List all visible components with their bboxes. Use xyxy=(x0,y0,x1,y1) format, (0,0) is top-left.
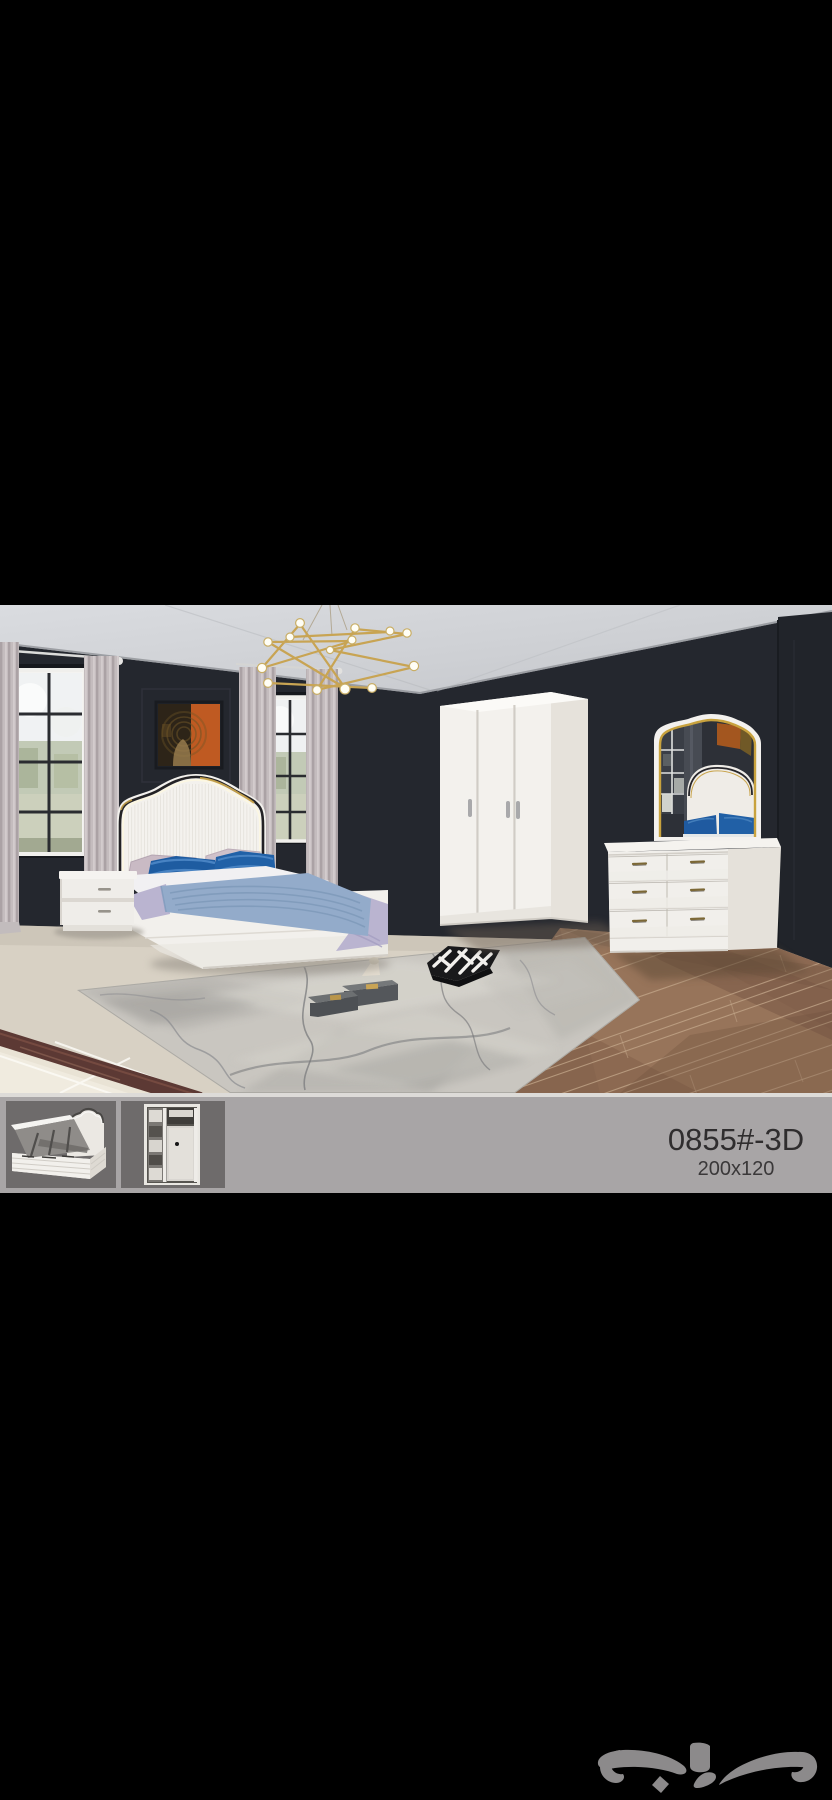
svg-text:0855#-3D: 0855#-3D xyxy=(668,1122,804,1157)
svg-text:200x120: 200x120 xyxy=(698,1158,775,1180)
